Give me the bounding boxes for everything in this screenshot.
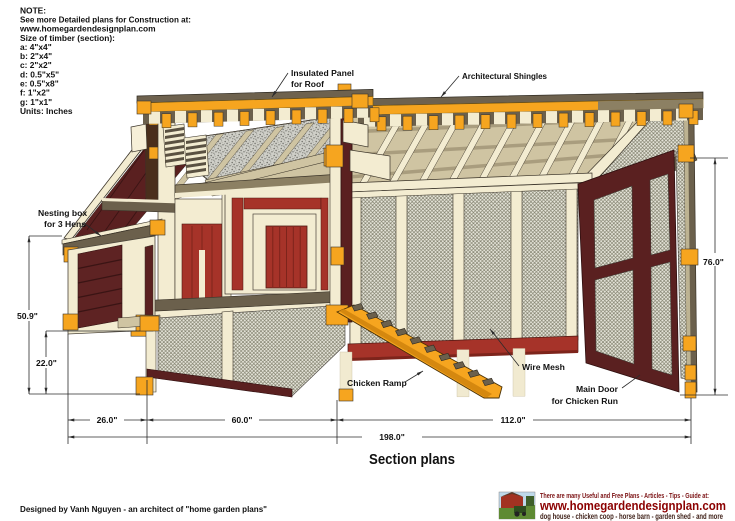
svg-text:for 3 Hens: for 3 Hens [44, 219, 86, 229]
svg-text:Architectural Shingles: Architectural Shingles [462, 71, 547, 81]
svg-text:Wire Mesh: Wire Mesh [522, 362, 565, 372]
svg-text:Chicken Ramp: Chicken Ramp [347, 378, 407, 388]
svg-text:76.0": 76.0" [703, 257, 724, 267]
svg-text:60.0": 60.0" [232, 415, 253, 425]
svg-text:Units: Inches: Units: Inches [20, 106, 73, 116]
svg-text:26.0": 26.0" [97, 415, 118, 425]
svg-text:Designed by Vanh Nguyen - an a: Designed by Vanh Nguyen - an architect o… [20, 504, 267, 514]
svg-text:Main Door: Main Door [576, 384, 619, 394]
svg-text:112.0": 112.0" [500, 415, 525, 425]
svg-text:198.0": 198.0" [379, 432, 405, 442]
svg-text:Section plans: Section plans [369, 452, 455, 468]
svg-text:Nesting box: Nesting box [38, 208, 87, 218]
svg-text:dog house - chicken coop - hor: dog house - chicken coop - horse barn - … [540, 512, 723, 521]
svg-text:50.9": 50.9" [17, 311, 38, 321]
svg-text:for Roof: for Roof [291, 79, 324, 89]
svg-text:22.0": 22.0" [36, 358, 57, 368]
svg-text:Insulated Panel: Insulated Panel [291, 68, 354, 78]
svg-text:www.homegardendesignplan.com: www.homegardendesignplan.com [539, 498, 726, 513]
svg-text:for Chicken Run: for Chicken Run [552, 396, 618, 406]
